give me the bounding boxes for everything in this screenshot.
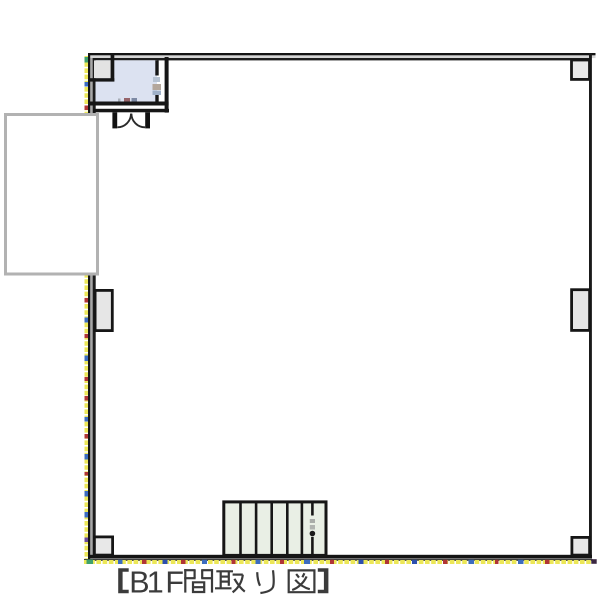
svg-text:1: 1 [147,565,164,599]
svg-text:F: F [165,565,184,599]
